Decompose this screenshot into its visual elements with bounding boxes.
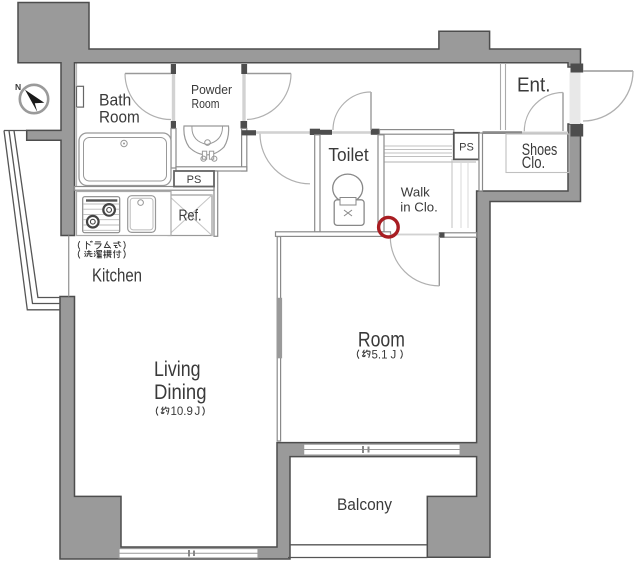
svg-text:Ent.: Ent. — [517, 74, 551, 97]
svg-text:J: J — [391, 349, 397, 361]
svg-text:Balcony: Balcony — [337, 496, 393, 514]
svg-text:10.9: 10.9 — [171, 406, 193, 418]
svg-text:in Clo.: in Clo. — [400, 199, 438, 214]
svg-text:Toilet: Toilet — [328, 145, 368, 165]
svg-text:N: N — [15, 82, 21, 92]
svg-text:Clo.: Clo. — [522, 154, 545, 172]
svg-text:Dining: Dining — [154, 381, 207, 404]
svg-text:J: J — [195, 406, 201, 418]
svg-text:Room: Room — [99, 108, 140, 126]
svg-text:PS: PS — [187, 174, 202, 186]
svg-text:Bath: Bath — [99, 91, 131, 109]
svg-text:Living: Living — [154, 358, 201, 381]
svg-text:Walk: Walk — [401, 184, 431, 199]
svg-text:Ref.: Ref. — [179, 207, 202, 224]
svg-text:Room: Room — [192, 96, 220, 111]
svg-text:Room: Room — [358, 328, 405, 351]
svg-text:5.1: 5.1 — [372, 349, 388, 361]
svg-text:PS: PS — [459, 142, 474, 154]
svg-text:Kitchen: Kitchen — [92, 265, 142, 285]
